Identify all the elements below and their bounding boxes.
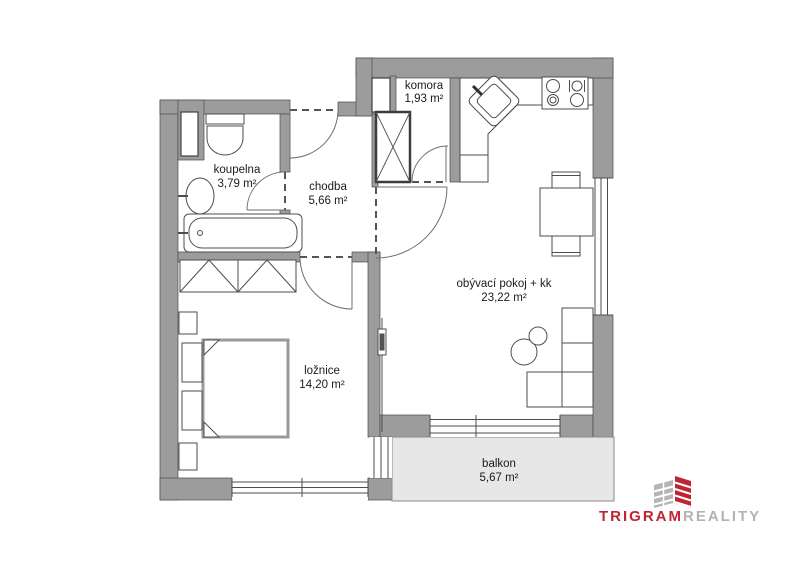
wall-left-exterior	[160, 100, 178, 500]
wall-komora-divider	[390, 76, 396, 114]
washbasin	[178, 178, 214, 214]
wall-living-bottom-right	[560, 415, 593, 437]
sofa	[527, 308, 593, 407]
label-koupelna: koupelna	[214, 164, 261, 176]
nightstand-top	[179, 312, 197, 334]
wall-top-right	[356, 58, 613, 78]
nightstand-bottom	[179, 443, 197, 470]
bed-pillow-top	[182, 343, 202, 382]
label-balkon: balkon	[482, 458, 516, 470]
label-loznice-area: 14,20 m²	[299, 379, 345, 391]
logo-brand-secondary: REALITY	[683, 508, 761, 525]
floorplan-page: koupelna 3,79 m² chodba 5,66 m² komora 1…	[0, 0, 800, 565]
floorplan-drawing: koupelna 3,79 m² chodba 5,66 m² komora 1…	[0, 0, 800, 565]
side-table-small	[529, 327, 547, 345]
wall-top-jog-column	[356, 58, 372, 116]
toilet	[206, 114, 244, 155]
trigram-logo-text: TRIGRAMREALITY	[599, 508, 761, 525]
label-komora: komora	[405, 80, 444, 92]
label-chodba-area: 5,66 m²	[309, 195, 348, 207]
label-loznice: ložnice	[304, 365, 340, 377]
komora-shaft	[372, 78, 390, 112]
label-komora-area: 1,93 m²	[405, 93, 444, 105]
stove	[542, 77, 588, 109]
wall-bottom-right-block	[368, 478, 392, 500]
bathtub	[178, 214, 302, 252]
dining-chair-top	[552, 172, 580, 188]
komora-door	[412, 146, 448, 182]
window-right-bg	[593, 178, 613, 315]
logo-brand-primary: TRIGRAM	[599, 508, 683, 525]
wall-living-bottom-left	[380, 415, 430, 437]
label-obyvaci-area: 23,22 m²	[481, 292, 527, 304]
wall-bottom-left-block	[160, 478, 232, 500]
label-koupelna-area: 3,79 m²	[218, 178, 257, 190]
bathroom-shaft	[181, 112, 198, 156]
dining-set	[540, 172, 593, 256]
dining-chair-bottom	[552, 236, 580, 256]
label-balkon-area: 5,67 m²	[480, 472, 519, 484]
bedroom-furniture	[179, 260, 296, 470]
wall-right-lower	[593, 315, 613, 438]
wardrobe	[180, 260, 296, 292]
wall-bath-right-upper	[280, 114, 290, 172]
kitchen	[460, 74, 593, 182]
bedroom-door	[300, 257, 352, 309]
window-bedroom-bg	[232, 478, 368, 500]
bed	[203, 340, 288, 437]
living-room-furniture	[378, 308, 593, 432]
label-chodba: chodba	[309, 181, 347, 193]
trigram-logo-icon	[654, 476, 691, 508]
wall-komora-right	[450, 78, 460, 182]
bed-pillow-bottom	[182, 391, 202, 430]
dining-table	[540, 188, 593, 236]
entrance-door	[290, 110, 338, 158]
komora-wardrobe	[376, 112, 410, 182]
living-room-door	[376, 187, 447, 258]
label-obyvaci: obývací pokoj + kk	[457, 278, 552, 290]
